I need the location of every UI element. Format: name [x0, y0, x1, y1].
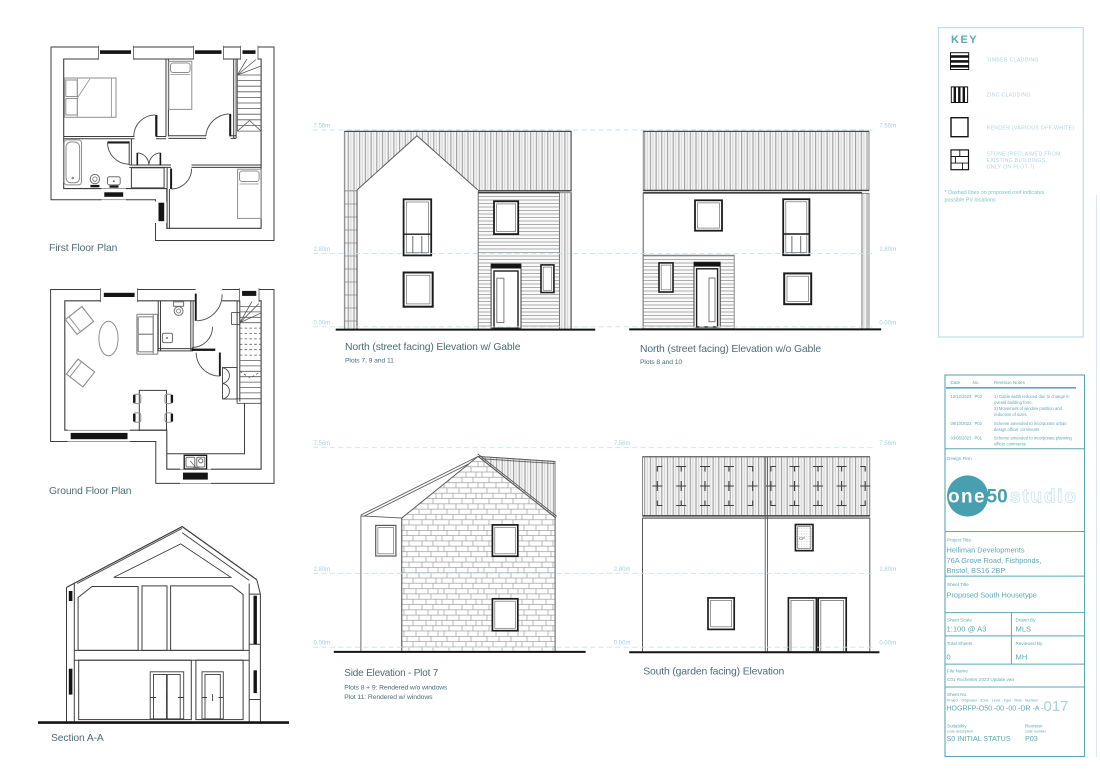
svg-text:Proposed South Housetype: Proposed South Housetype [947, 591, 1037, 600]
svg-text:North (street facing) Elevatio: North (street facing) Elevation w/o Gabl… [640, 344, 821, 355]
svg-text:7.56m: 7.56m [614, 441, 631, 447]
svg-text:Sheet No.: Sheet No. [947, 692, 967, 697]
svg-text:0.00m: 0.00m [314, 641, 331, 647]
svg-text:0.00m: 0.00m [879, 320, 896, 326]
svg-text:Project - Originator - Zone -: Project - Originator - Zone - Level - Ty… [947, 699, 1039, 703]
svg-text:RENDER (VARIOUS OFF-WHITE): RENDER (VARIOUS OFF-WHITE) [987, 126, 1075, 132]
svg-text:EXISTING BUILDINGS,: EXISTING BUILDINGS, [987, 158, 1048, 164]
svg-text:7.56m: 7.56m [879, 124, 896, 130]
svg-text:Plots 8 + 9: Rendered w/o wind: Plots 8 + 9: Rendered w/o windows [344, 685, 448, 692]
svg-text:Suitability: Suitability [947, 724, 967, 729]
svg-text:ZINC CLADDING: ZINC CLADDING [987, 93, 1031, 99]
svg-text:C01 Rochester 2023 Update.vwx: C01 Rochester 2023 Update.vwx [947, 677, 1015, 682]
svg-text:No.: No. [973, 380, 980, 385]
svg-text:Plots 7, 9 and 11: Plots 7, 9 and 11 [345, 358, 394, 365]
svg-text:P01: P01 [975, 436, 983, 441]
svg-text:code number: code number [1025, 730, 1047, 734]
svg-text:Section A-A: Section A-A [51, 733, 104, 744]
svg-text:P03: P03 [975, 394, 983, 399]
svg-text:one: one [948, 487, 986, 508]
svg-text:P03: P03 [1025, 734, 1038, 743]
svg-text:2.80m: 2.80m [879, 247, 896, 253]
svg-text:2.80m: 2.80m [314, 247, 331, 253]
svg-text:KEY: KEY [951, 34, 978, 46]
svg-text:Design Firm: Design Firm [947, 456, 972, 461]
svg-text:76A Grove Road, Fishponds,: 76A Grove Road, Fishponds, [947, 556, 1042, 565]
svg-text:CF: CF [799, 536, 805, 541]
svg-text:MLS: MLS [1016, 625, 1032, 634]
svg-text:Project Title: Project Title [947, 538, 971, 543]
svg-text:reduction of sizes.: reduction of sizes. [994, 412, 1028, 417]
svg-text:code description: code description [947, 730, 973, 734]
svg-text:12/12/2023: 12/12/2023 [951, 394, 973, 399]
svg-text:03/05/2023: 03/05/2023 [951, 436, 973, 441]
svg-text:possible PV locations: possible PV locations [945, 198, 997, 204]
svg-text:STONE (RECLAIMED FROM: STONE (RECLAIMED FROM [987, 152, 1061, 158]
svg-text:Drawn By: Drawn By [1016, 618, 1037, 623]
svg-text:ONLY ON PLOT 7): ONLY ON PLOT 7) [987, 165, 1035, 171]
svg-text:2.80m: 2.80m [314, 567, 331, 573]
svg-text:0.00m: 0.00m [879, 641, 896, 647]
svg-text:File Name: File Name [947, 669, 968, 674]
svg-text:design officer comments: design officer comments [994, 427, 1039, 432]
svg-text:MH: MH [1016, 653, 1028, 662]
svg-text:North (street facing) Elevatio: North (street facing) Elevation w/ Gable [345, 342, 521, 353]
svg-text:1) Gable width reduced due to: 1) Gable width reduced due to change in [994, 394, 1070, 399]
svg-text:2.80m: 2.80m [879, 567, 896, 573]
svg-text:South (garden facing) Elevatio: South (garden facing) Elevation [643, 667, 784, 678]
svg-text:TIMBER CLADDING: TIMBER CLADDING [987, 58, 1039, 64]
svg-text:0: 0 [947, 653, 951, 662]
svg-text:Revision Notes: Revision Notes [994, 380, 1026, 385]
svg-text:officer comments: officer comments [994, 442, 1026, 447]
svg-text:HOGRFP-O50 -00 -00 -DR -A -: HOGRFP-O50 -00 -00 -DR -A - [947, 706, 1045, 713]
svg-text:Revision: Revision [1025, 724, 1043, 729]
svg-text:Side Elevation - Plot 7: Side Elevation - Plot 7 [344, 668, 438, 679]
svg-text:08/10/2023: 08/10/2023 [951, 421, 973, 426]
svg-text:017: 017 [1044, 698, 1069, 715]
svg-text:Scheme amended to incorporate: Scheme amended to incorporate urban [994, 421, 1067, 426]
svg-text:Total Sheets: Total Sheets [947, 641, 973, 646]
svg-text:2.80m: 2.80m [614, 567, 631, 573]
svg-text:P02: P02 [975, 421, 983, 426]
svg-text:7.56m: 7.56m [314, 441, 331, 447]
svg-text:Bristol, BS16 2BP: Bristol, BS16 2BP [947, 566, 1006, 575]
svg-text:2) Movement of window position: 2) Movement of window position and [994, 406, 1063, 411]
svg-text:Plot 11: Rendered w/ windows: Plot 11: Rendered w/ windows [344, 694, 433, 701]
svg-text:0.00m: 0.00m [314, 320, 331, 326]
svg-text:studio: studio [1010, 487, 1078, 508]
svg-text:overall building form.: overall building form. [994, 400, 1033, 405]
svg-text:50: 50 [987, 487, 1008, 508]
svg-text:Sheet Scale: Sheet Scale [947, 618, 972, 623]
svg-text:Date: Date [951, 380, 961, 385]
svg-text:Reviewed By: Reviewed By [1016, 641, 1044, 646]
svg-text:Sheet Title: Sheet Title [947, 582, 969, 587]
svg-text:0.00m: 0.00m [614, 641, 631, 647]
svg-text:7.56m: 7.56m [879, 441, 896, 447]
svg-text:Helliman Developments: Helliman Developments [947, 546, 1025, 555]
svg-text:* Dashed lines on proposed roo: * Dashed lines on proposed roof indicate… [945, 190, 1045, 196]
svg-text:Plots 8 and 10: Plots 8 and 10 [640, 359, 682, 366]
svg-text:First Floor Plan: First Floor Plan [49, 243, 118, 254]
svg-text:Scheme amended to incorporate: Scheme amended to incorporate planning [994, 436, 1072, 441]
svg-text:7.56m: 7.56m [314, 124, 331, 130]
svg-text:Ground Floor Plan: Ground Floor Plan [49, 486, 132, 497]
svg-text:S0 INITIAL STATUS: S0 INITIAL STATUS [947, 734, 1011, 743]
svg-text:1:100 @ A3: 1:100 @ A3 [947, 625, 987, 634]
